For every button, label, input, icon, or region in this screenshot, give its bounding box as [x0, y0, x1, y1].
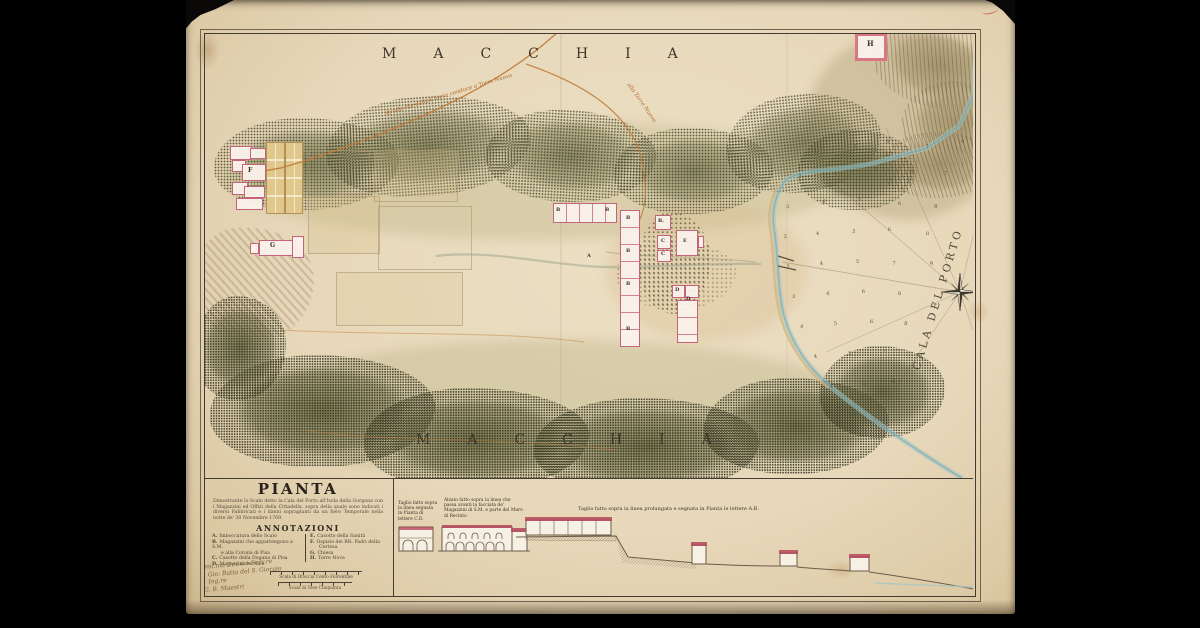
map-title: PIANTA	[210, 480, 386, 498]
building-outline	[230, 146, 252, 160]
building-key-letter: B	[626, 282, 630, 287]
panel-divider	[393, 479, 394, 596]
building-chiesa	[259, 240, 293, 256]
building-key-letter: F	[248, 168, 252, 173]
building-key-letter: B	[626, 249, 630, 254]
building-key-letter: B.	[658, 219, 664, 224]
building-key-letter: E	[683, 239, 687, 244]
depth-sounding: 8	[926, 232, 929, 237]
profile-drawing-ab	[516, 501, 973, 596]
depth-sounding: 4	[814, 150, 818, 155]
scan-background: FGHABBBBBBB.CCEDD 4567834567345682456834…	[0, 0, 1200, 628]
building-key-letter: G	[270, 243, 275, 248]
depth-sounding: 9	[930, 262, 934, 267]
depth-sounding: 3	[792, 295, 795, 300]
scale-bar-caption: Scala di Braccia Cento Fiorentine	[270, 575, 362, 580]
depth-sounding: 5	[884, 408, 887, 413]
torn-corner-top-left	[186, 0, 234, 30]
magazzini-sale	[677, 300, 698, 343]
depth-sounding: 8	[898, 292, 901, 297]
building-outline	[244, 186, 265, 198]
building-key-letter: B	[556, 208, 560, 213]
label-macchia-bottom: MACCHIA	[416, 432, 749, 448]
depth-sounding: 3	[786, 205, 789, 210]
building-key-letter: B	[605, 208, 609, 213]
depth-sounding: 8	[961, 140, 964, 145]
depth-sounding: 2	[784, 235, 788, 240]
depth-sounding: 5	[874, 168, 877, 173]
stream	[436, 254, 761, 267]
depth-sounding: 4	[830, 385, 834, 390]
depth-sounding: 7	[926, 145, 930, 150]
depth-sounding: 6	[898, 202, 901, 207]
annotations-divider	[305, 534, 306, 562]
depth-sounding: 4	[834, 172, 838, 177]
building-outline	[292, 236, 304, 258]
building-key-letter: A	[587, 254, 591, 259]
annotation-item: H.Torre Nova	[310, 556, 388, 562]
caption-section-cd: Taglio fatto sopra la linea segnata in P…	[398, 501, 438, 522]
map-sheet: FGHABBBBBBB.CCEDD 4567834567345682456834…	[186, 0, 1015, 614]
depth-sounding: 5	[858, 198, 862, 203]
depth-sounding: 5	[848, 352, 851, 357]
depth-sounding: 4	[820, 262, 824, 267]
section-drawing-cd	[397, 521, 437, 553]
depth-sounding: 4	[814, 355, 818, 360]
building-key-letter: B	[626, 327, 630, 332]
building-key-letter: B	[626, 216, 630, 221]
building-outline	[236, 198, 263, 210]
building-casotto	[676, 230, 698, 256]
building-key-letter: H	[867, 41, 874, 46]
map-subtitle: Dimostrante lo Scalo detto la Cala del P…	[213, 499, 383, 522]
scale-bar-caption: Scala di Tese Cinquanta	[278, 586, 352, 591]
depth-sounding: 6	[862, 290, 866, 295]
depth-sounding: 5	[834, 322, 838, 327]
magazzini-row	[553, 203, 617, 223]
depth-sounding: 6	[888, 228, 892, 233]
depth-sounding: 6	[870, 320, 873, 325]
building-key-letter: C	[661, 252, 665, 257]
depth-sounding: 7	[944, 172, 948, 177]
building-outline	[698, 236, 704, 248]
depth-sounding: 4	[854, 412, 858, 417]
label-macchia-top: MACCHIA	[382, 46, 715, 62]
annotations-heading: ANNOTAZIONI	[210, 523, 386, 533]
building-ospizio	[242, 164, 266, 181]
annotation-item: B.Magazzini che appartengono a S.M.	[212, 540, 304, 551]
building-key-letter: D	[675, 288, 679, 293]
depth-sounding: 5	[854, 145, 857, 150]
building-key-letter: C	[661, 239, 665, 244]
building-key-letter: D	[686, 297, 690, 302]
margin-mark	[981, 5, 998, 16]
cartouche-panel: PIANTA Dimostrante lo Scalo detto la Cal…	[205, 478, 973, 596]
depth-sounding: 5	[862, 382, 865, 387]
annotations-right-column: E.Casotto della SanitàF.Ospizio dei RR. …	[310, 534, 388, 562]
building-outline	[250, 148, 266, 159]
depth-sounding: 5	[856, 260, 859, 265]
map-area: FGHABBBBBBB.CCEDD 4567834567345682456834…	[205, 34, 973, 478]
depth-sounding: 4	[816, 232, 819, 237]
building-outline	[250, 243, 259, 254]
